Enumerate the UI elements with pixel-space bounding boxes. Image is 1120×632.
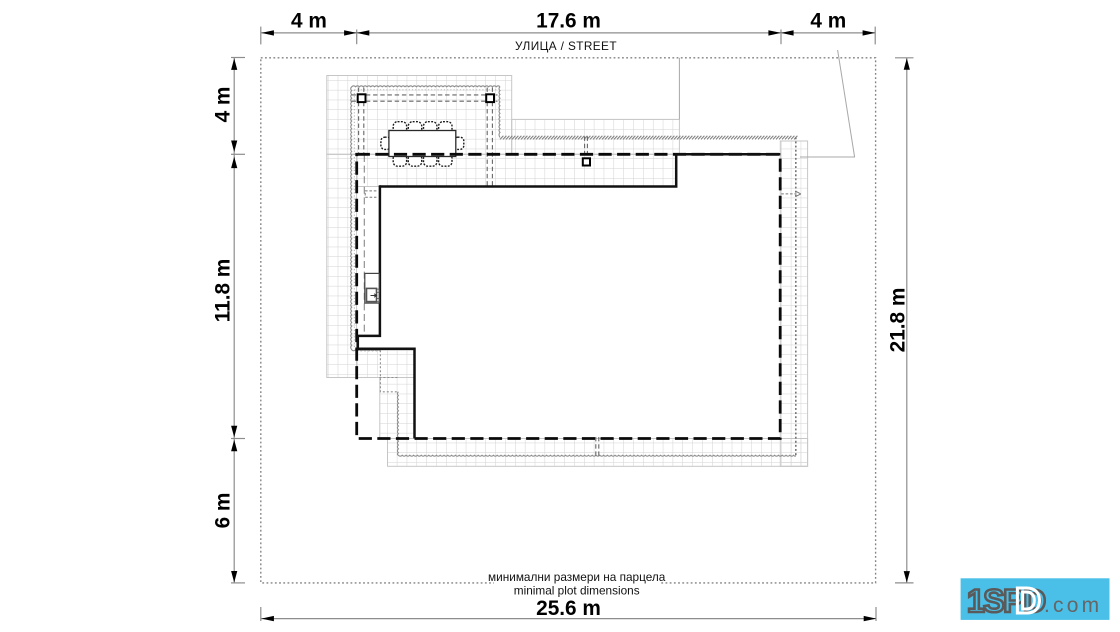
svg-text:4 m: 4 m: [810, 10, 846, 33]
svg-text:21.8 m: 21.8 m: [886, 288, 909, 353]
svg-text:минимални размери на парцела: минимални размери на парцела: [488, 570, 666, 584]
svg-text:4 m: 4 m: [291, 10, 327, 33]
svg-text:25.6 m: 25.6 m: [536, 597, 601, 620]
svg-text:minimal plot dimensions: minimal plot dimensions: [514, 584, 640, 598]
svg-text:4 m: 4 m: [212, 87, 235, 123]
svg-text:.com: .com: [1044, 594, 1102, 617]
svg-text:11.8 m: 11.8 m: [212, 259, 235, 323]
svg-text:6 m: 6 m: [212, 493, 235, 529]
svg-text:D: D: [1015, 580, 1041, 621]
svg-text:17.6 m: 17.6 m: [536, 10, 601, 33]
svg-text:УЛИЦА / STREET: УЛИЦА / STREET: [515, 39, 617, 53]
